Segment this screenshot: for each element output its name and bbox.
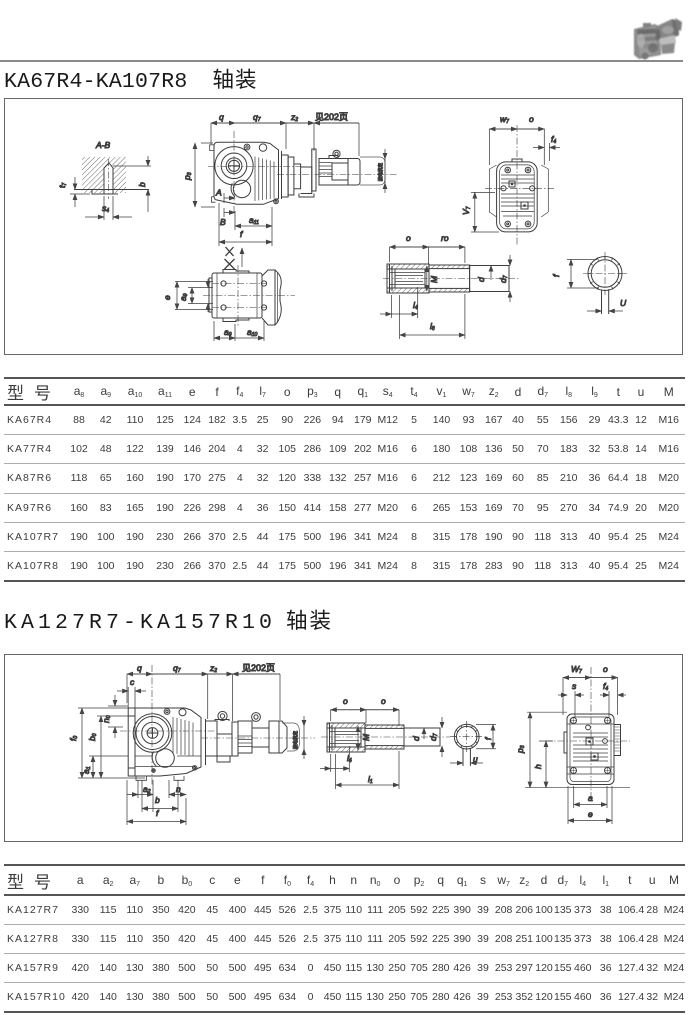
svg-text:f4: f4: [551, 134, 556, 145]
svg-text:U: U: [620, 298, 627, 308]
svg-text:o: o: [406, 233, 411, 243]
svg-text:a: a: [588, 793, 593, 803]
svg-text:f: f: [483, 736, 493, 740]
svg-text:s: s: [572, 681, 577, 691]
svg-text:p3: p3: [515, 745, 526, 754]
svg-text:d7: d7: [428, 733, 439, 741]
svg-text:f0: f0: [68, 736, 79, 741]
svg-text:f: f: [240, 229, 244, 239]
svg-text:M: M: [429, 275, 439, 283]
svg-text:l4: l4: [413, 300, 418, 311]
svg-text:n0: n0: [101, 715, 112, 723]
svg-text:e: e: [162, 295, 172, 300]
svg-text:b: b: [155, 795, 160, 805]
svg-text:a9: a9: [178, 293, 189, 301]
svg-text:a9: a9: [224, 327, 232, 338]
svg-text:q7: q7: [253, 112, 261, 123]
svg-text:W7: W7: [571, 664, 582, 675]
svg-text:f: f: [156, 808, 160, 818]
svg-text:B: B: [220, 217, 226, 227]
svg-text:d: d: [411, 736, 421, 741]
svg-text:q7: q7: [173, 663, 181, 674]
svg-text:A-B: A-B: [95, 140, 111, 150]
svg-text:u: u: [473, 754, 478, 764]
svg-text:p3: p3: [182, 172, 193, 181]
svg-text:o: o: [603, 664, 608, 674]
svg-text:a1: a1: [81, 766, 92, 774]
svg-text:按电机定: 按电机定: [377, 163, 384, 181]
svg-text:n: n: [176, 784, 181, 794]
svg-text:z2: z2: [290, 112, 298, 123]
svg-text:h: h: [533, 764, 543, 769]
svg-text:a2: a2: [143, 784, 151, 795]
svg-text:见202页: 见202页: [315, 112, 348, 122]
svg-text:l1: l1: [368, 774, 373, 785]
svg-text:o: o: [529, 114, 534, 124]
svg-text:a11: a11: [249, 215, 259, 226]
svg-text:d: d: [476, 277, 486, 282]
svg-text:见202页: 见202页: [242, 663, 275, 673]
svg-text:f: f: [551, 273, 561, 277]
svg-text:e: e: [588, 809, 593, 819]
svg-text:q: q: [219, 112, 224, 122]
svg-text:V7: V7: [461, 206, 472, 215]
svg-text:a10: a10: [247, 327, 258, 338]
svg-text:ro: ro: [441, 233, 449, 243]
svg-text:l8: l8: [430, 321, 435, 332]
svg-text:按电机定: 按电机定: [292, 731, 299, 749]
svg-text:A: A: [215, 188, 222, 198]
svg-text:f4: f4: [603, 681, 608, 692]
svg-text:d7: d7: [498, 275, 509, 283]
svg-text:s4: s4: [102, 203, 109, 214]
svg-text:t7: t7: [57, 183, 68, 188]
svg-text:w7: w7: [500, 114, 509, 125]
svg-text:o: o: [343, 696, 348, 706]
svg-text:b: b: [137, 182, 147, 187]
svg-text:b0: b0: [87, 733, 98, 741]
svg-text:q: q: [137, 663, 142, 673]
svg-text:M: M: [361, 733, 371, 741]
svg-text:z2: z2: [209, 663, 217, 674]
svg-text:c: c: [130, 677, 135, 687]
svg-text:o: o: [381, 696, 386, 706]
